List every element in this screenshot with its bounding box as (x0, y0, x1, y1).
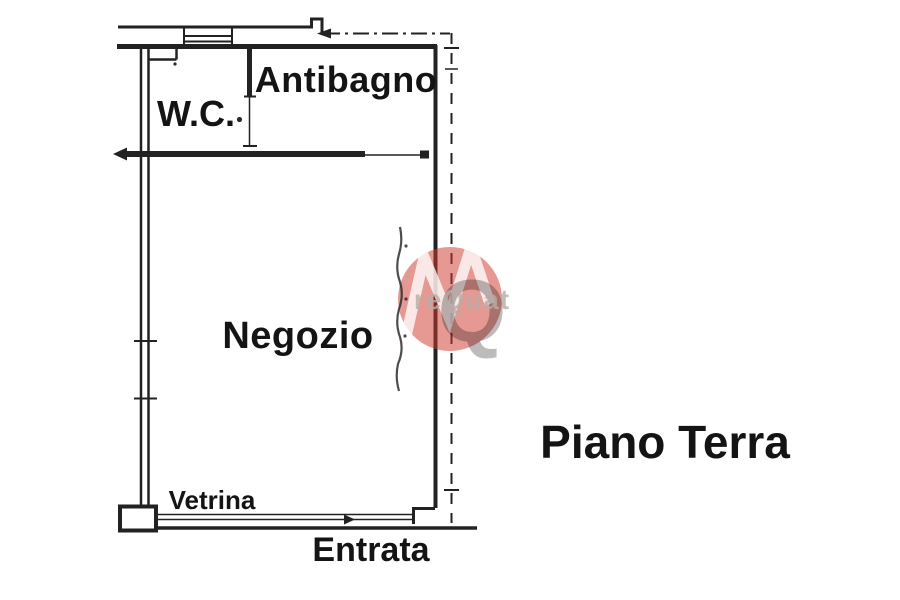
shop-window-lines (158, 515, 412, 525)
mid-wall (113, 148, 429, 161)
room-label-antibagno: Antibagno (255, 59, 437, 100)
floor-plan-page: Q reQuat W.C. Antibagno Negozio Vetrina … (0, 0, 900, 600)
watermark-logo: Q reQuat (398, 247, 510, 360)
dimension-arrow (317, 29, 331, 39)
vetrina-label: Vetrina (169, 485, 256, 515)
left-wall (134, 45, 157, 531)
entrance-arrow (344, 515, 355, 525)
room-label-negozio: Negozio (222, 315, 373, 357)
floor-title: Piano Terra (540, 416, 790, 468)
top-dash-dot-line (317, 29, 450, 39)
room-label-wc: W.C. (157, 93, 235, 134)
top-outer-wall-line (118, 19, 322, 33)
wall-end-arrow (113, 148, 127, 161)
door-jamb-block (420, 151, 429, 159)
step-block (414, 509, 436, 525)
watermark-text: reQuat (414, 284, 510, 315)
corner-pillar (120, 507, 156, 531)
floor-plan-drawing: Q reQuat W.C. Antibagno Negozio Vetrina … (0, 0, 900, 600)
entrata-label: Entrata (312, 531, 430, 569)
